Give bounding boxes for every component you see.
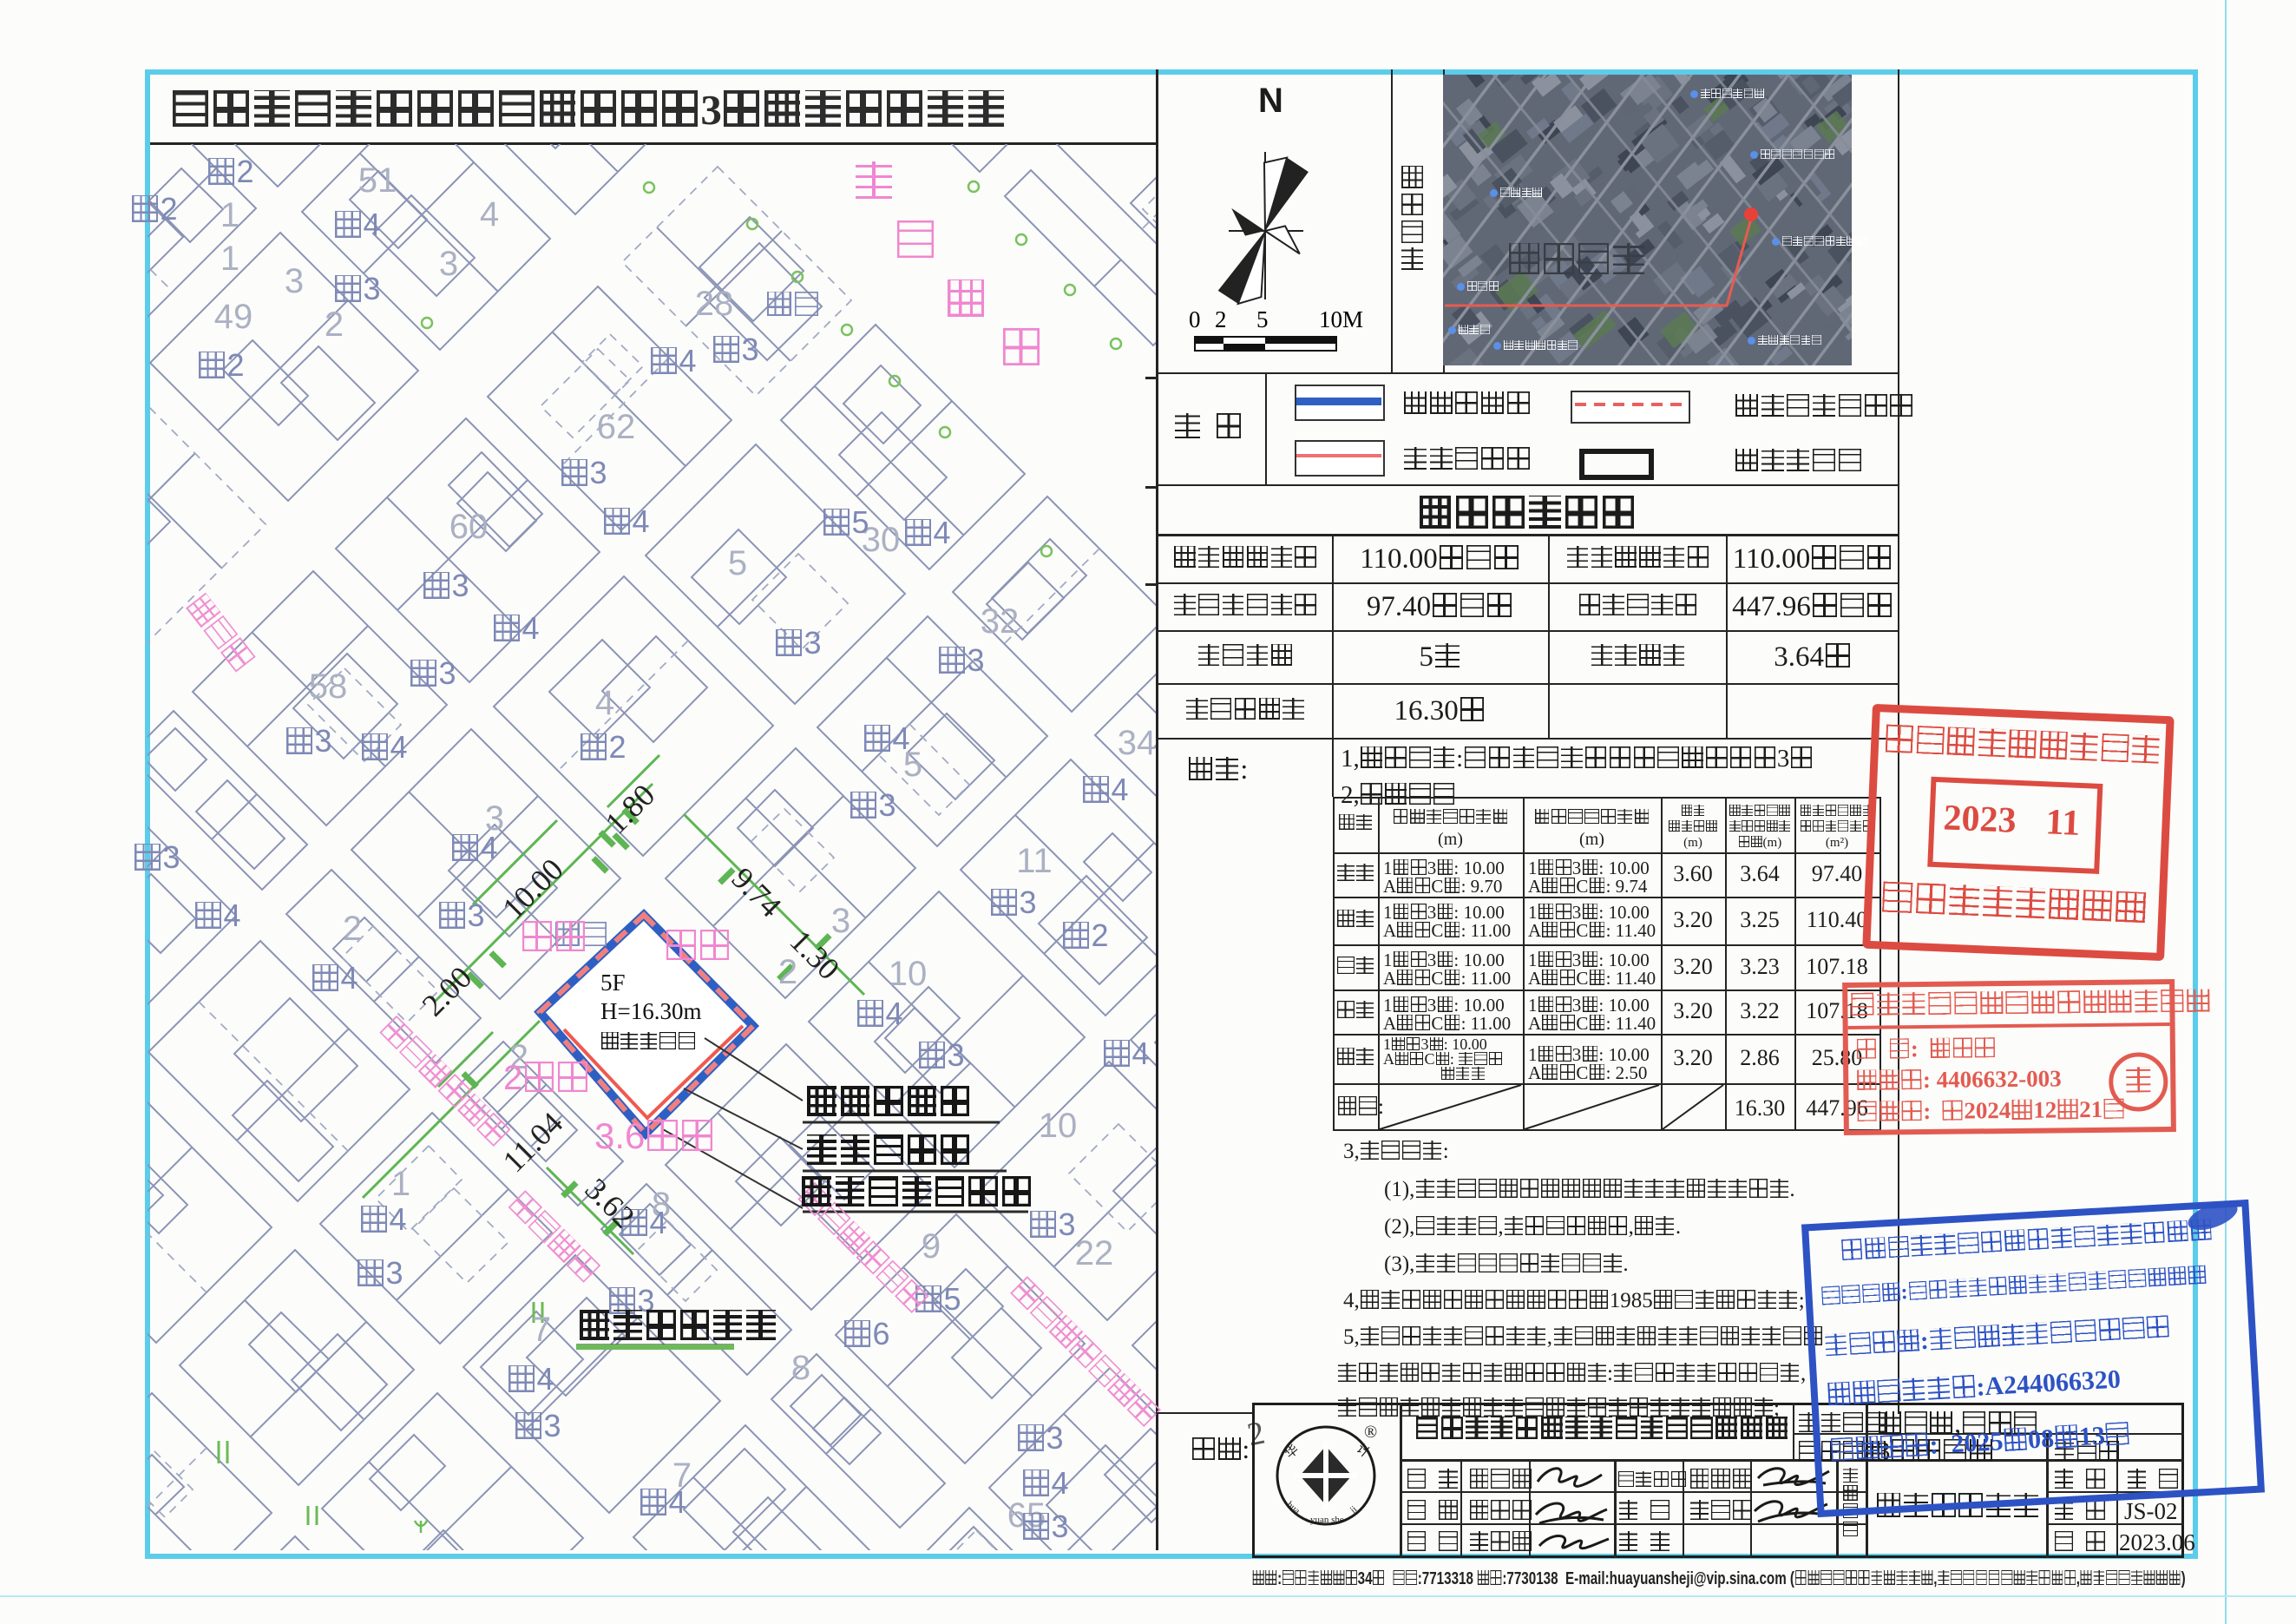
svg-text:10M: 10M	[1319, 308, 1363, 332]
svg-text:2: 2	[1215, 308, 1227, 332]
svg-text:hua: hua	[1284, 1500, 1302, 1516]
svg-text:华: 华	[1282, 1442, 1302, 1462]
svg-text:yuan she: yuan she	[1310, 1515, 1344, 1525]
svg-text:0: 0	[1189, 308, 1201, 332]
svg-text:5: 5	[1256, 308, 1269, 332]
svg-text:®: ®	[1364, 1423, 1377, 1442]
